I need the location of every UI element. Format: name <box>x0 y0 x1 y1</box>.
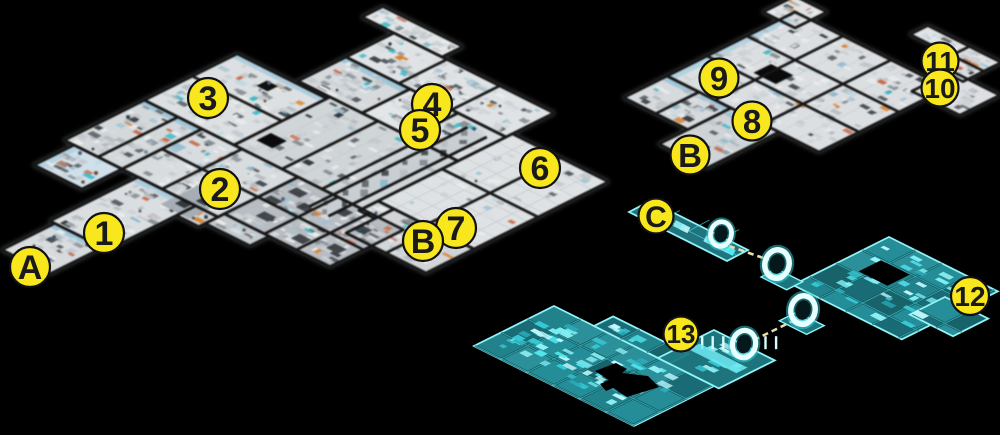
svg-text:12: 12 <box>954 281 985 312</box>
svg-text:5: 5 <box>411 112 430 150</box>
svg-text:3: 3 <box>199 80 218 118</box>
svg-text:6: 6 <box>531 150 550 188</box>
svg-text:C: C <box>645 201 667 234</box>
svg-text:9: 9 <box>710 60 728 97</box>
svg-text:7: 7 <box>447 210 466 248</box>
svg-text:8: 8 <box>743 103 761 140</box>
svg-text:2: 2 <box>211 171 230 209</box>
svg-text:10: 10 <box>924 73 955 104</box>
svg-text:B: B <box>678 137 702 174</box>
svg-text:B: B <box>411 223 436 261</box>
svg-text:A: A <box>18 249 43 287</box>
svg-text:13: 13 <box>667 319 696 349</box>
svg-text:1: 1 <box>95 215 114 253</box>
